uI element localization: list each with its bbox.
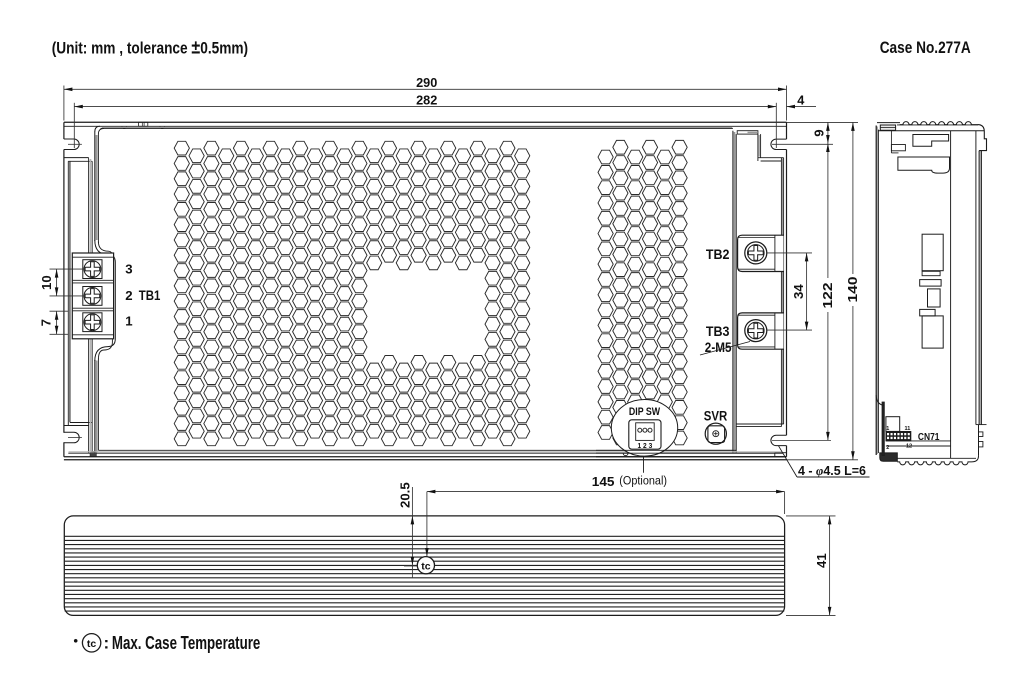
svg-text:Max. Case Temperature: Max. Case Temperature (112, 632, 260, 653)
svg-text:3: 3 (125, 262, 132, 277)
svg-text:9: 9 (812, 129, 827, 136)
svg-text:145: 145 (592, 474, 615, 489)
svg-text:34: 34 (791, 284, 806, 299)
svg-text:290: 290 (416, 75, 437, 90)
svg-text:tc: tc (87, 638, 96, 650)
svg-text:7: 7 (39, 319, 54, 326)
svg-text:282: 282 (416, 92, 437, 107)
svg-text:TB2: TB2 (706, 246, 730, 262)
svg-text:4 - φ4.5 L=6: 4 - φ4.5 L=6 (798, 464, 866, 478)
svg-text:2: 2 (125, 288, 132, 303)
svg-text:DIP SW: DIP SW (629, 406, 661, 418)
svg-text:1: 1 (886, 426, 889, 432)
svg-text:1: 1 (125, 313, 132, 328)
svg-text:11: 11 (905, 426, 911, 432)
svg-text:TB1: TB1 (139, 287, 161, 303)
svg-text:(Unit: mm , tolerance ±0.5mm): (Unit: mm , tolerance ±0.5mm) (52, 37, 248, 58)
svg-text:(Optional): (Optional) (619, 474, 667, 488)
svg-text:20.5: 20.5 (398, 482, 413, 508)
svg-text:12: 12 (906, 444, 912, 450)
svg-text:122: 122 (820, 283, 835, 309)
svg-text:140: 140 (845, 277, 860, 303)
svg-text:4: 4 (797, 93, 805, 108)
svg-text:SVR: SVR (704, 408, 728, 423)
svg-text:tc: tc (421, 560, 430, 572)
svg-text:1 2 3: 1 2 3 (638, 441, 653, 450)
svg-text:TB3: TB3 (706, 323, 730, 339)
svg-text::: : (104, 634, 110, 653)
svg-text:10: 10 (39, 275, 54, 290)
svg-text:Case No.277A: Case No.277A (880, 38, 971, 57)
svg-text:41: 41 (814, 553, 829, 568)
